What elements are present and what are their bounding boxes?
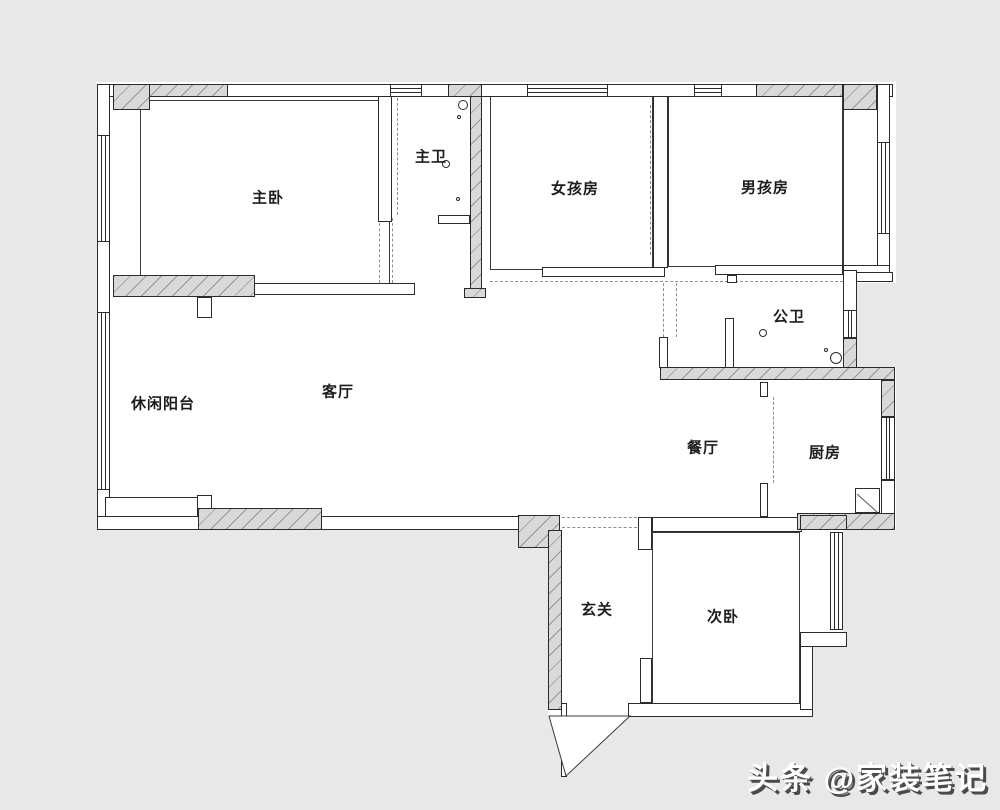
dashed-opening [490,281,843,282]
girls-room-bottom-wall [542,267,665,277]
dashed-opening [379,218,380,283]
public-bath-partition [725,318,734,368]
kitchen-right-wall-lower [881,480,895,515]
background-notch [857,283,897,367]
fixture-circle [759,329,767,337]
room-label-leisure-balcony: 休闲阳台 [131,393,195,414]
hatched-wall [113,84,150,110]
hatched-wall [843,338,857,368]
hatched-wall [843,84,877,110]
hatched-wall [470,96,482,290]
bottom-exterior-wall [97,516,560,530]
hatched-wall [756,84,843,97]
room-label-boys-room: 男孩房 [741,177,789,198]
fixture-circle [456,197,460,201]
dashed-opening [663,283,664,337]
dashed-opening [562,517,637,518]
window [97,312,110,490]
room-label-master-bedroom: 主卧 [252,187,284,208]
hatched-wall [548,530,562,710]
kitchen-sink [855,488,880,513]
entry-divider-bottom-stub [640,658,652,703]
dashed-opening [676,283,677,337]
hatched-wall [198,508,322,530]
hatched-wall [660,367,895,380]
dashed-opening [392,218,393,283]
window [830,532,843,630]
entry-divider-top-stub [638,517,652,550]
fixture-circle [824,348,828,352]
boys-room-pillar [727,275,737,283]
window [877,142,890,234]
dashed-opening [650,105,651,255]
boys-room-bottom-wall [715,265,843,275]
window [843,310,857,338]
room-label-master-bath: 主卫 [415,146,447,167]
fixture-circle [458,100,468,110]
room-label-second-bedroom: 次卧 [707,606,739,627]
window [881,417,895,480]
room-label-entryway: 玄关 [581,599,613,620]
hatched-wall [800,515,847,530]
boys-room-right-inner-line [843,96,844,266]
window [527,84,608,97]
fixture-circle [457,115,461,119]
living-room-top-wall [253,283,415,295]
hatched-wall [113,275,255,297]
living-room-pillar-top [197,297,212,318]
dashed-opening [397,98,398,215]
floor-plan: 头条 @家装笔记 主卧主卫女孩房男孩房公卫休闲阳台客厅餐厅厨房玄关次卧 [0,0,1000,810]
second-bedroom-right-wall [800,645,813,710]
second-bedroom-right-step [800,632,847,647]
room-label-kitchen: 厨房 [809,442,841,463]
public-bath-left-stub [659,337,668,368]
room-label-girls-room: 女孩房 [551,178,599,199]
window [390,84,422,97]
entry-wall-strip [561,703,567,777]
dashed-opening [773,397,774,483]
balcony-south-inner-wall [105,497,200,517]
room-label-living-room: 客厅 [322,381,354,402]
master-bedroom-right-wall [378,96,392,222]
dashed-opening [562,527,637,528]
second-bedroom-bottom-wall [628,703,813,717]
girls-boys-divider-wall [653,96,668,268]
window [97,135,110,242]
room-label-dining-room: 餐厅 [687,437,719,458]
window [694,84,722,97]
notch-step-band [855,272,893,282]
hatched-wall [881,380,895,417]
room-label-public-bath: 公卫 [773,306,805,327]
fixture-circle [830,352,842,364]
master-bath-bottom-stub [438,215,470,224]
watermark-text: 头条 @家装笔记 [747,753,988,798]
hatched-wall [464,288,486,298]
kitchen-left-stub-bottom [760,483,768,517]
public-bath-right-wall [843,270,857,312]
kitchen-left-stub-top [760,382,768,397]
second-bedroom-top-wall [652,517,802,532]
